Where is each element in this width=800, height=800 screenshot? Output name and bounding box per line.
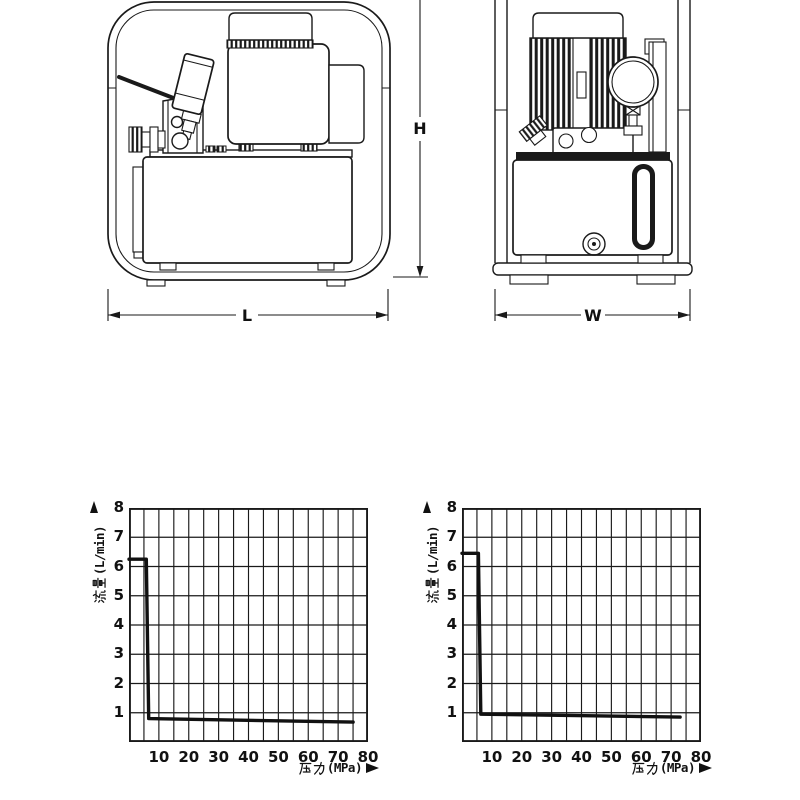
x-axis-label: (MPa): [631, 760, 712, 775]
dimension-arrow-right-icon: [678, 312, 690, 319]
dimension-arrow-right-icon: [376, 312, 388, 319]
x-axis-label-unit: (MPa): [327, 760, 362, 775]
dimension-w: W: [495, 289, 690, 325]
x-tick-label: 50: [268, 748, 289, 766]
y-tick-label: 4: [447, 615, 457, 633]
y-tick-label: 6: [114, 557, 124, 575]
x-axis-label-cjk: [631, 761, 659, 775]
tank-top-plate: [516, 152, 670, 160]
y-tick-label: 3: [447, 644, 457, 662]
motor-top-cap: [533, 13, 623, 38]
dimension-label-l: L: [242, 306, 252, 325]
technical-drawing-page: H L: [0, 0, 800, 800]
x-tick-label: 30: [208, 748, 229, 766]
dimension-label-w: W: [584, 306, 602, 325]
y-tick-label: 2: [114, 674, 124, 692]
dimension-label-h: H: [413, 119, 426, 138]
y-tick-label: 1: [114, 703, 124, 721]
front-view-tank: [513, 152, 672, 263]
pivot-pin: [172, 117, 183, 128]
y-tick-label: 5: [114, 586, 124, 604]
x-tick-label: 40: [238, 748, 259, 766]
x-axis-arrow-right-icon: [699, 763, 712, 773]
x-axis-label-unit: (MPa): [660, 760, 695, 775]
y-tick-label: 4: [114, 615, 124, 633]
curve-flow-vs-pressure: [462, 553, 680, 717]
x-axis-label-cjk: [298, 761, 326, 775]
dimension-arrow-left-icon: [108, 312, 120, 319]
dimension-h: H: [393, 0, 428, 277]
y-axis-ticks: 87654321: [425, 508, 457, 742]
dimension-arrow-left-icon: [495, 312, 507, 319]
x-tick-label: 10: [148, 748, 169, 766]
y-tick-label: 8: [114, 498, 124, 516]
flow-pressure-chart-right: (L/min) 87654321 1020304050607080 (MPa): [462, 508, 701, 742]
curve-flow-vs-pressure: [129, 559, 353, 722]
y-tick-label: 5: [447, 586, 457, 604]
dimension-l: L: [108, 289, 388, 325]
motor-rib-band: [227, 40, 313, 48]
terminal-box: [329, 65, 364, 143]
motor-top-cap: [229, 13, 312, 40]
y-tick-label: 7: [114, 527, 124, 545]
flow-pressure-chart-left: (L/min) 87654321 1020304050607080 (MPa): [129, 508, 368, 742]
y-tick-label: 7: [447, 527, 457, 545]
y-tick-label: 3: [114, 644, 124, 662]
side-view-tank: [133, 150, 352, 270]
cjk-char-glyph: [631, 761, 645, 775]
x-tick-label: 40: [571, 748, 592, 766]
manifold-port: [559, 134, 573, 148]
x-axis-label: (MPa): [298, 760, 379, 775]
y-tick-label: 6: [447, 557, 457, 575]
y-tick-label: 1: [447, 703, 457, 721]
x-tick-label: 10: [481, 748, 502, 766]
y-tick-label: 2: [447, 674, 457, 692]
pump-front-view: W: [493, 0, 692, 325]
gauge-dial: [608, 57, 658, 107]
cjk-char-glyph: [645, 761, 659, 775]
manifold-port: [582, 128, 597, 143]
plot-area: [462, 508, 701, 742]
y-axis-ticks: 87654321: [92, 508, 124, 742]
pump-side-view: H L: [108, 0, 428, 325]
dimension-arrow-down-icon: [417, 266, 424, 277]
cjk-char-glyph: [312, 761, 326, 775]
y-tick-label: 8: [447, 498, 457, 516]
x-tick-label: 50: [601, 748, 622, 766]
x-tick-label: 20: [178, 748, 199, 766]
pump-drawings: H L: [0, 0, 800, 345]
x-tick-label: 30: [541, 748, 562, 766]
x-tick-label: 20: [511, 748, 532, 766]
pivot-pin: [172, 133, 188, 149]
x-axis-arrow-right-icon: [366, 763, 379, 773]
cjk-char-glyph: [298, 761, 312, 775]
plot-area: [129, 508, 368, 742]
